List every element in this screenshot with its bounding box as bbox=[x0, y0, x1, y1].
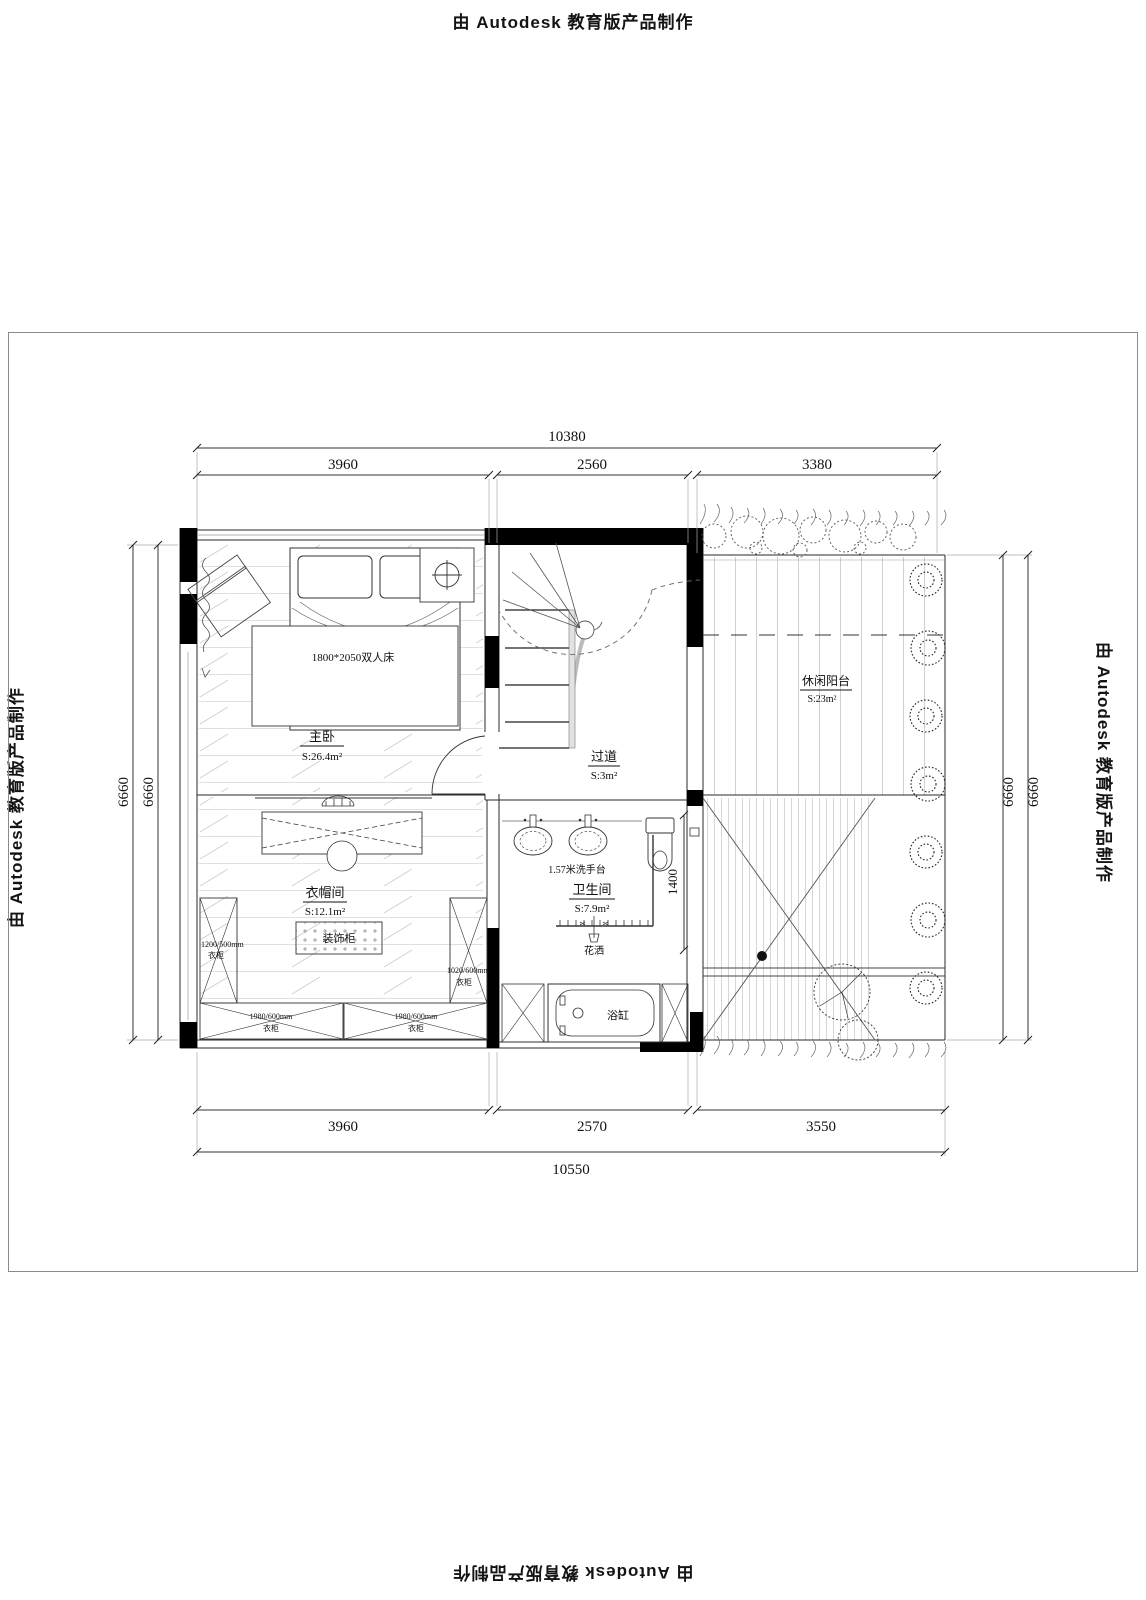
decor-cabinet-label: 装饰柜 bbox=[323, 931, 356, 945]
toilet bbox=[646, 818, 674, 871]
bathroom-room-area: S:7.9m² bbox=[575, 903, 610, 915]
vanity-label: 1.57米洗手台 bbox=[548, 863, 606, 876]
wardrobe-left-label: 衣柜 bbox=[208, 950, 224, 960]
closet-room-area: S:12.1m² bbox=[305, 906, 346, 918]
plants-top-row bbox=[702, 516, 916, 557]
hallway-room-name: 过道 bbox=[591, 749, 617, 764]
wardrobe-bottom2-label: 衣柜 bbox=[408, 1023, 424, 1033]
door-opening bbox=[482, 732, 502, 794]
dim-right-1: 6660 bbox=[1001, 777, 1017, 807]
switch-box bbox=[690, 828, 699, 836]
dim-left-2: 6660 bbox=[141, 777, 157, 807]
wardrobe-right-size: 1020/600mm bbox=[447, 966, 490, 975]
dim-bottom-3: 3550 bbox=[806, 1119, 836, 1135]
balcony-room-name: 休闲阳台 bbox=[802, 673, 850, 688]
dim-left-1: 6660 bbox=[116, 777, 132, 807]
wardrobe-left-size: 1200/500mm bbox=[201, 940, 244, 949]
dim-toilet: 1400 bbox=[665, 869, 680, 895]
wardrobe-bottom1-label: 衣柜 bbox=[263, 1023, 279, 1033]
master-room-name: 主卧 bbox=[309, 729, 335, 744]
bathroom-room-name: 卫生间 bbox=[572, 882, 611, 897]
balcony-room-area: S:23m² bbox=[807, 694, 836, 705]
wardrobe-bottom2-size: 1980/600mm bbox=[395, 1012, 438, 1021]
hallway-room-area: S:3m² bbox=[591, 770, 618, 782]
bathtub bbox=[548, 984, 660, 1042]
closet-room-name: 衣帽间 bbox=[305, 885, 344, 900]
staircase bbox=[499, 543, 700, 748]
floor-plan: 10380 3960 2560 3380 3960 2570 3550 1055… bbox=[0, 0, 1146, 1600]
dim-top-2: 2560 bbox=[577, 457, 607, 473]
shower-head bbox=[580, 916, 608, 942]
wardrobe-right-label: 衣柜 bbox=[456, 977, 472, 987]
dim-bottom-total: 10550 bbox=[552, 1162, 590, 1178]
dim-bottom-1: 3960 bbox=[328, 1119, 358, 1135]
dim-top-1: 3960 bbox=[328, 457, 358, 473]
shower-label: 花洒 bbox=[584, 944, 604, 957]
dim-bottom-2: 2570 bbox=[577, 1119, 607, 1135]
nightstand bbox=[420, 548, 474, 602]
dim-top-3: 3380 bbox=[802, 457, 832, 473]
bathtub-label: 浴缸 bbox=[607, 1008, 629, 1022]
bed-label: 1800*2050双人床 bbox=[312, 650, 395, 664]
drain-dot bbox=[757, 951, 767, 961]
grass-top bbox=[700, 504, 946, 526]
dim-right-2: 6660 bbox=[1026, 777, 1042, 807]
wardrobe-bottom1-size: 1980/600mm bbox=[250, 1012, 293, 1021]
master-room-area: S:26.4m² bbox=[302, 751, 343, 763]
dim-top-total: 10380 bbox=[548, 429, 586, 445]
